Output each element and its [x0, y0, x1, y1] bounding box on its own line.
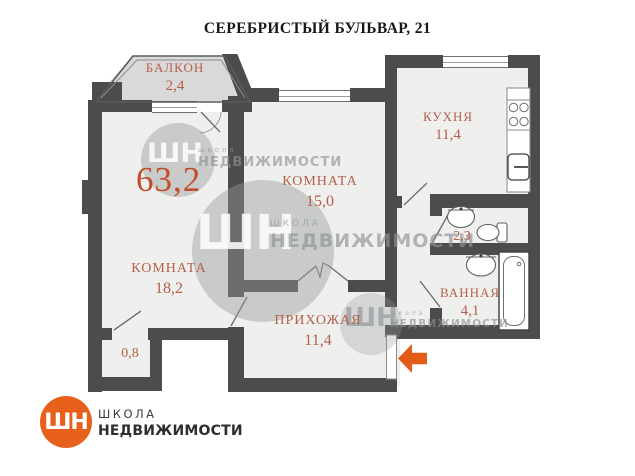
kitchen-label: КУХНЯ 11,4	[398, 110, 498, 143]
storage-door-leaf	[114, 311, 141, 330]
agency-logo-icon: ШН	[40, 396, 92, 448]
page-title: СЕРЕБРИСТЫЙ БУЛЬВАР, 21	[0, 20, 635, 38]
floor-plan: СЕРЕБРИСТЫЙ БУЛЬВАР, 21	[0, 0, 635, 476]
balcony-door-leaf	[201, 112, 220, 132]
total-area-label: 63,2	[136, 160, 201, 200]
wc-area-label: 2,3	[412, 230, 512, 244]
storage-area-label: 0,8	[80, 347, 180, 361]
room-middle-label: КОМНАТА 15,0	[270, 175, 370, 210]
agency-logo-text: ШКОЛА НЕДВИЖИМОСТИ	[98, 409, 243, 438]
watermark-text: школа НЕДВИЖИМОСТИ	[198, 147, 342, 169]
room-left-label: КОМНАТА 18,2	[119, 262, 219, 297]
balcony-label: БАЛКОН 2,4	[125, 61, 225, 94]
hallway-label: ПРИХОЖАЯ 11,4	[268, 314, 368, 349]
bathroom-label: ВАННАЯ 4,1	[420, 286, 520, 319]
kitchen-door-leaf	[404, 183, 427, 205]
